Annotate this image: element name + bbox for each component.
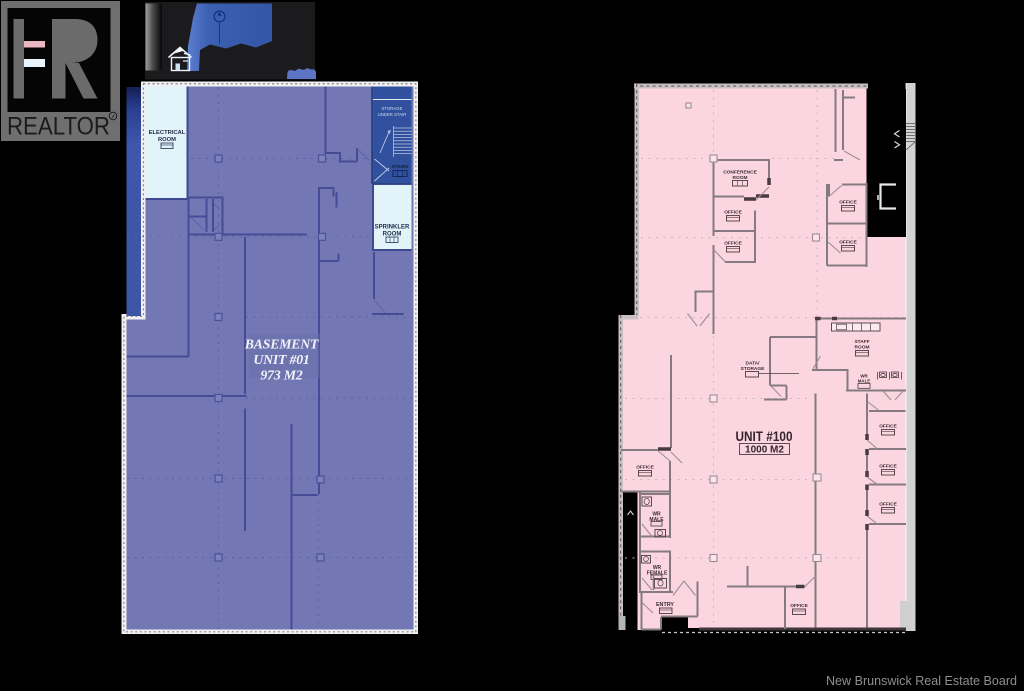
svg-text:STAIRS: STAIRS — [391, 164, 409, 170]
svg-text:FEMALE: FEMALE — [647, 571, 668, 577]
svg-text:New Brunswick Real Estate Boar: New Brunswick Real Estate Board — [826, 673, 1017, 688]
svg-text:ENTRY: ENTRY — [656, 602, 674, 608]
svg-text:ROOM: ROOM — [158, 137, 176, 143]
svg-text:DATA/: DATA/ — [746, 361, 761, 367]
svg-text:UNDER STAIR: UNDER STAIR — [378, 112, 407, 117]
svg-text:STAFF: STAFF — [854, 339, 869, 345]
svg-text:OFFICE: OFFICE — [724, 241, 742, 247]
svg-text:SPRINKLER: SPRINKLER — [375, 225, 410, 231]
svg-text:CONFERENCE: CONFERENCE — [723, 170, 757, 176]
svg-text:UNIT #01: UNIT #01 — [253, 352, 309, 367]
svg-text:OFFICE: OFFICE — [724, 210, 742, 216]
svg-text:ROOM: ROOM — [855, 345, 870, 351]
svg-text:OFFICE: OFFICE — [790, 603, 808, 609]
svg-text:OFFICE: OFFICE — [839, 200, 857, 206]
svg-text:ELECTRICAL: ELECTRICAL — [149, 130, 186, 136]
svg-text:BASEMENT: BASEMENT — [244, 337, 319, 352]
svg-text:OFFICE: OFFICE — [879, 502, 897, 508]
svg-text:OFFICE: OFFICE — [879, 464, 897, 470]
svg-text:973 M2: 973 M2 — [260, 368, 302, 383]
svg-text:OFFICE: OFFICE — [879, 424, 897, 430]
svg-text:OFFICE: OFFICE — [839, 240, 857, 246]
svg-text:UNIT #100: UNIT #100 — [736, 428, 793, 444]
svg-text:1000 M2: 1000 M2 — [745, 445, 784, 456]
svg-text:MALE: MALE — [858, 379, 871, 384]
svg-text:STORAGE: STORAGE — [382, 106, 403, 111]
svg-text:OFFICE: OFFICE — [636, 465, 654, 471]
svg-text:REALTOR: REALTOR — [7, 113, 110, 141]
